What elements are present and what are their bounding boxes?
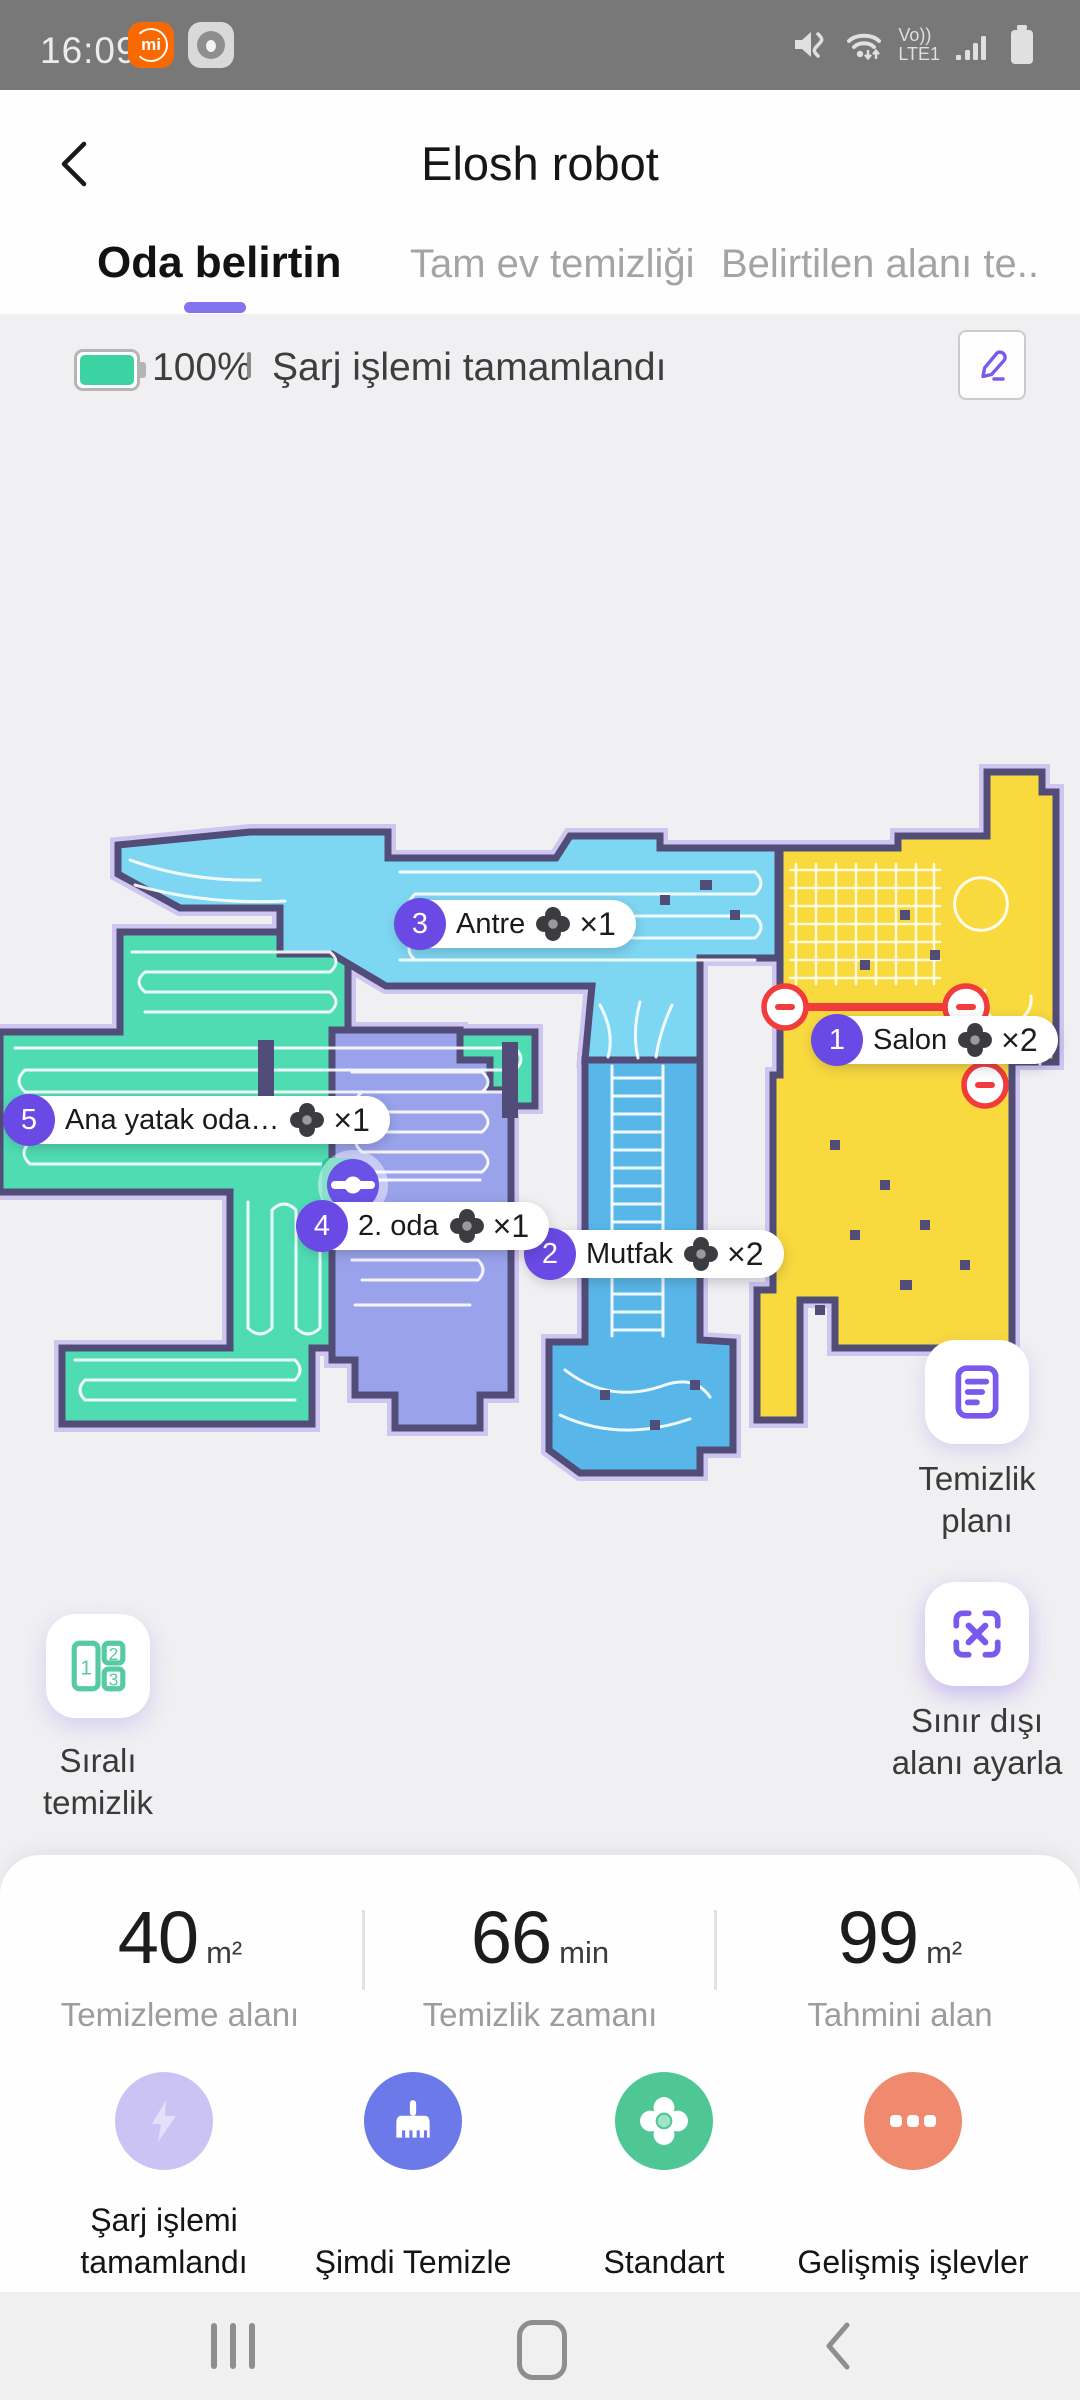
back-nav-icon[interactable] [820, 2320, 856, 2372]
no-go-zone-button[interactable] [925, 1582, 1029, 1686]
robot-app-screen: 16:09 mi Vo)) LTE1 [0, 0, 1080, 2400]
advanced-functions-label: Gelişmiş işlevler [783, 2197, 1043, 2283]
tab-belirtilen-alan[interactable]: Belirtilen alanı te.. [721, 242, 1039, 287]
battery-status-icon [1008, 23, 1036, 67]
mute-vibrate-icon [792, 26, 830, 64]
advanced-functions-button[interactable] [864, 2072, 962, 2170]
stat-estimated-area: 99m² Tahmini alan [720, 1895, 1080, 2034]
no-go-zone-icon [948, 1605, 1006, 1663]
app-header: Elosh robot Oda belirtin Tam ev temizliğ… [0, 90, 1080, 314]
stat-cleaning-area: 40m² Temizleme alanı [0, 1895, 360, 2034]
room-label-mutfak[interactable]: 2 Mutfak ×2 [526, 1230, 784, 1278]
fan-count-icon [683, 1236, 719, 1272]
status-divider [247, 352, 251, 378]
lightning-icon [141, 2098, 187, 2144]
wifi-icon [844, 26, 884, 64]
tab-tam-ev-temizligi[interactable]: Tam ev temizliği [410, 242, 695, 287]
sequential-cleaning-label: Sıralı temizlik [3, 1740, 193, 1824]
clean-now-label: Şimdi Temizle [283, 2197, 543, 2283]
clean-now-button[interactable] [364, 2072, 462, 2170]
room-label-ana-yatak[interactable]: 5 Ana yatak oda… ×1 [5, 1096, 390, 1144]
charge-status-label: Şarj işlemi tamamlandı [39, 2197, 289, 2283]
robot-status-message: Şarj işlemi tamamlandı [272, 346, 666, 390]
svg-text:3: 3 [109, 1670, 119, 1690]
sequential-cleaning-button[interactable]: 1 2 3 [46, 1614, 150, 1718]
fan-count-icon [535, 906, 571, 942]
svg-text:2: 2 [109, 1644, 119, 1664]
status-bar: 16:09 mi Vo)) LTE1 [0, 0, 1080, 90]
robot-battery-icon [74, 349, 140, 391]
room-label-antre[interactable]: 3 Antre ×1 [396, 900, 636, 948]
clock: 16:09 [40, 30, 138, 72]
sequential-cleaning-icon: 1 2 3 [67, 1635, 129, 1697]
room-label-salon[interactable]: 1 Salon ×2 [813, 1016, 1058, 1064]
stat-cleaning-time: 66min Temizlik zamanı [360, 1895, 720, 2034]
charge-status-button[interactable] [115, 2072, 213, 2170]
fan-icon [639, 2096, 689, 2146]
broom-icon [388, 2096, 438, 2146]
recents-icon[interactable] [211, 2323, 255, 2369]
cleaning-plan-icon [948, 1363, 1006, 1421]
more-dots-icon [888, 2111, 938, 2131]
fan-count-icon [957, 1022, 993, 1058]
fan-count-icon [289, 1102, 325, 1138]
system-navigation-bar [0, 2292, 1080, 2400]
active-tab-indicator [184, 302, 246, 313]
room-order-badge: 5 [3, 1094, 55, 1146]
robot-battery-percent: 100% [152, 346, 252, 390]
suction-mode-button[interactable] [615, 2072, 713, 2170]
fan-count-icon [449, 1208, 485, 1244]
svg-text:1: 1 [80, 1656, 92, 1679]
tab-oda-belirtin[interactable]: Oda belirtin [97, 238, 341, 288]
stat-divider [714, 1910, 717, 1990]
room-order-badge: 1 [811, 1014, 863, 1066]
mi-home-icon: mi [128, 22, 174, 68]
signal-strength-icon [954, 26, 994, 64]
cleaning-plan-button[interactable] [925, 1340, 1029, 1444]
room-label-2-oda[interactable]: 4 2. oda ×1 [298, 1202, 549, 1250]
bottom-panel: 40m² Temizleme alanı 66min Temizlik zama… [0, 1855, 1080, 2292]
room-order-badge: 3 [394, 898, 446, 950]
screen-recorder-icon [188, 22, 234, 68]
pencil-icon [971, 344, 1013, 386]
no-go-zone-label: Sınır dışı alanı ayarla [882, 1700, 1072, 1784]
home-icon[interactable] [517, 2320, 567, 2380]
suction-mode-label: Standart [534, 2197, 794, 2283]
volte-indicator: Vo)) LTE1 [898, 26, 940, 64]
cleaning-plan-label: Temizlik planı [887, 1458, 1067, 1542]
page-title: Elosh robot [0, 136, 1080, 191]
edit-map-button[interactable] [958, 330, 1026, 400]
room-order-badge: 4 [296, 1200, 348, 1252]
